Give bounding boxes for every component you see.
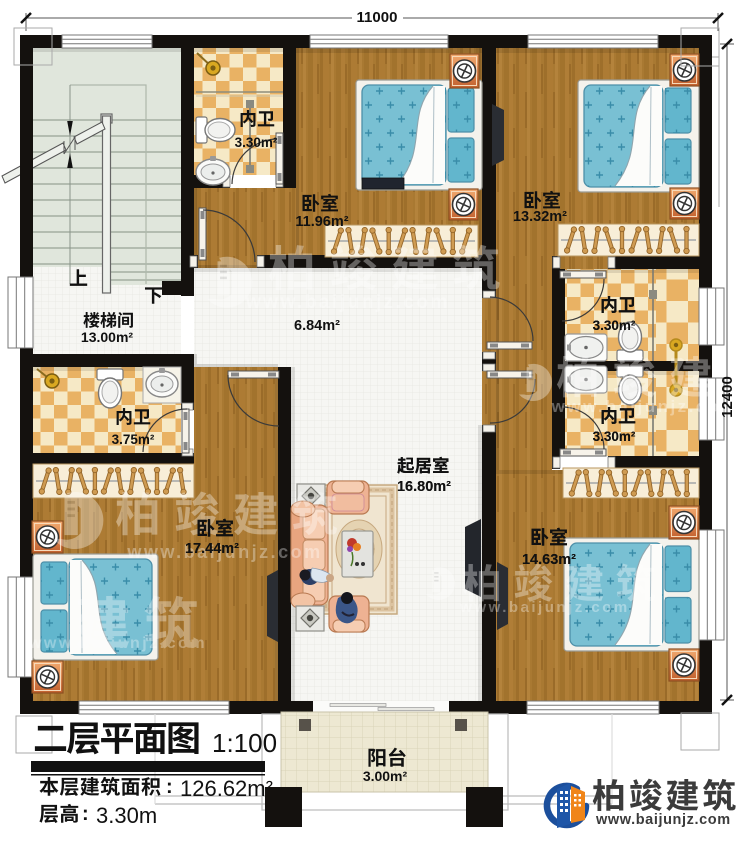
svg-text:3.30m²: 3.30m² [593, 318, 636, 333]
svg-text:3.30m: 3.30m [96, 803, 157, 828]
svg-text:1:100: 1:100 [212, 728, 277, 758]
svg-text:6.84m²: 6.84m² [294, 318, 340, 334]
svg-text:3.30m²: 3.30m² [235, 135, 278, 150]
svg-text:11.96m²: 11.96m² [295, 214, 348, 230]
svg-text:www.baijunjz.com: www.baijunjz.com [245, 292, 450, 313]
svg-text:17.44m²: 17.44m² [185, 541, 239, 557]
svg-text:12400: 12400 [719, 376, 736, 418]
svg-text:www.baijunjz.com: www.baijunjz.com [595, 812, 731, 828]
svg-text:13.00m²: 13.00m² [81, 329, 133, 345]
svg-text:3.75m²: 3.75m² [112, 432, 155, 447]
svg-text::: : [82, 803, 89, 825]
svg-text:16.80m²: 16.80m² [397, 479, 451, 495]
svg-text:www.baijunjz.com: www.baijunjz.com [28, 635, 207, 652]
svg-text:3.00m²: 3.00m² [363, 768, 408, 784]
svg-text:14.63m²: 14.63m² [522, 552, 576, 568]
svg-text:www.baijunjz.com: www.baijunjz.com [551, 397, 739, 416]
svg-text::: : [166, 776, 173, 798]
svg-text:13.32m²: 13.32m² [513, 209, 567, 225]
svg-text:www.baijunjz.com: www.baijunjz.com [459, 599, 629, 616]
svg-text:3.30m²: 3.30m² [593, 429, 636, 444]
svg-text:126.62m²: 126.62m² [180, 776, 273, 801]
svg-text:11000: 11000 [357, 9, 398, 26]
